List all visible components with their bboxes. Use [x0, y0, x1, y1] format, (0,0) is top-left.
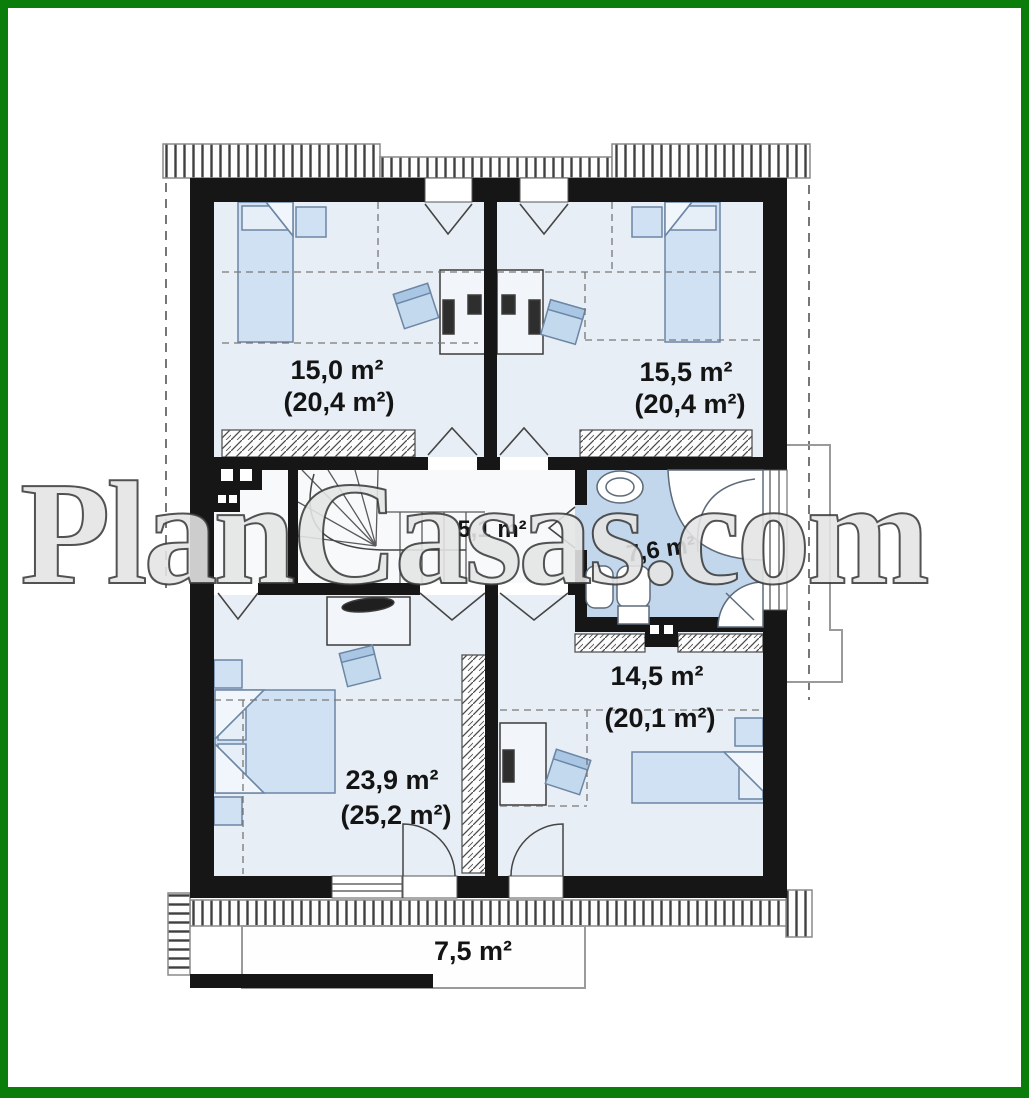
eave-bottom-right-wrap [786, 890, 812, 937]
nightstand-bl-upper [214, 660, 242, 688]
nightstand-top-right [632, 207, 662, 237]
wall-top [190, 178, 787, 202]
desk-bottom-right [500, 723, 546, 805]
label-bedroom-bottom-left-area: 23,9 m² [345, 765, 438, 795]
balcony [190, 926, 585, 988]
bed-bottom-left [215, 690, 335, 793]
label-bedroom-top-left-area: 15,0 m² [290, 355, 383, 385]
window-bottom [332, 876, 402, 898]
desk-top-left [440, 270, 486, 354]
label-bedroom-bottom-left-total: (25,2 m²) [340, 800, 451, 830]
eave-top-left [163, 144, 380, 178]
nightstand-bl-lower [214, 797, 242, 825]
desk-top-right [497, 270, 543, 354]
balcony-wall [190, 974, 433, 988]
eave-bottom-left-wrap [168, 893, 190, 975]
eave-bottom [190, 900, 788, 926]
wall-bottom [190, 876, 787, 898]
label-bedroom-top-right-total: (20,4 m²) [634, 389, 745, 419]
label-bedroom-bottom-right-total: (20,1 m²) [604, 703, 715, 733]
window-top-1 [425, 178, 472, 202]
label-balcony-area: 7,5 m² [434, 936, 512, 966]
label-bedroom-bottom-right-area: 14,5 m² [610, 661, 703, 691]
wardrobe-bl-tall [462, 655, 488, 873]
window-top-2 [520, 178, 568, 202]
nightstand-top-left [296, 207, 326, 237]
floor-plan-image: 15,0 m² (20,4 m²) 15,5 m² (20,4 m²) 5,1 … [0, 0, 1029, 1098]
bed-bottom-right [632, 752, 767, 803]
wall-partition-bottom [485, 583, 498, 876]
wall-partition-top [484, 202, 497, 457]
label-bedroom-top-left-total: (20,4 m²) [283, 387, 394, 417]
eave-top-right [612, 144, 810, 178]
watermark: PlanCasas.com [20, 460, 926, 608]
wardrobe-br-left [575, 634, 645, 652]
nightstand-bottom-right [735, 718, 763, 746]
eave-top-middle [380, 157, 612, 178]
label-bedroom-top-right-area: 15,5 m² [639, 357, 732, 387]
wardrobe-br-right [678, 634, 763, 652]
chair-bottom-left [339, 645, 380, 686]
